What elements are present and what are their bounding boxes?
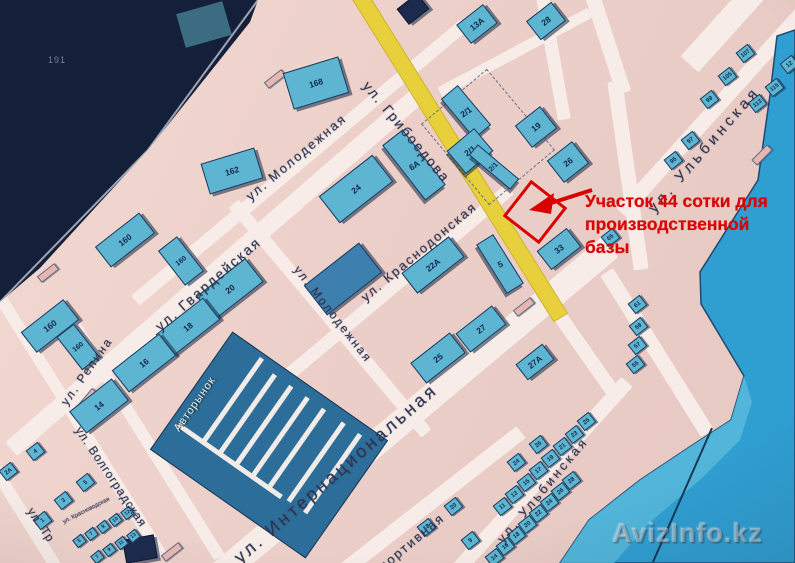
building-number: 61	[633, 300, 642, 309]
building-number: 19	[529, 120, 543, 134]
building-number: 10	[111, 516, 119, 524]
garage	[751, 144, 772, 165]
building-number: 2/1	[488, 161, 500, 173]
building-number: 17	[534, 466, 543, 475]
building-number: 97	[686, 136, 695, 145]
building-number: 28	[567, 476, 576, 485]
building-number: 9	[106, 547, 112, 553]
building-number: 33	[552, 242, 566, 256]
building-number: 160	[41, 318, 58, 335]
building-3: 3	[53, 490, 73, 509]
building-number: 26	[561, 155, 575, 169]
building-number: 160	[174, 255, 188, 268]
building-number: 160	[71, 341, 85, 354]
building-number: 7	[94, 554, 100, 560]
building-number: 19	[546, 454, 555, 463]
building-number: 24	[349, 182, 363, 196]
building-number: 27А	[526, 353, 544, 370]
building-number: 28	[539, 14, 553, 28]
building-number: 95	[669, 156, 678, 165]
building-number: 24	[512, 458, 521, 467]
building-number: 20	[223, 282, 237, 296]
annotation-line: производственной	[585, 213, 768, 236]
building-number: 13	[510, 490, 519, 499]
building-9: 9	[96, 520, 111, 535]
building-number: 26	[556, 487, 565, 496]
annotation-line: Участок 44 сотки для	[585, 190, 768, 213]
annotation-line: базы	[585, 236, 768, 259]
building-number: 99	[705, 95, 714, 104]
street-road	[600, 267, 713, 436]
building-number: 107	[739, 48, 751, 59]
building-number: 3	[60, 497, 66, 504]
building-number: 5	[82, 479, 88, 486]
building-number: 15	[522, 478, 531, 487]
building-number: 14	[490, 553, 499, 562]
building-5: 5	[75, 472, 95, 491]
building-number: 26	[534, 440, 543, 449]
building-number: 168	[308, 76, 324, 90]
building-168: 168	[283, 56, 350, 109]
building-number: 13	[129, 532, 137, 540]
building-number: 7	[88, 531, 94, 537]
building-number: 59	[634, 322, 643, 331]
building-number: 11	[498, 502, 507, 511]
building-26: 26	[528, 434, 548, 453]
district-inner-building	[176, 1, 232, 48]
building-number: 13А	[468, 15, 486, 32]
city-map: 191 Авторынок 168162246А2018161416016016…	[0, 0, 795, 563]
building-number: 4	[32, 448, 38, 455]
building-number: 115	[768, 82, 779, 93]
building-number: 22А	[424, 256, 442, 273]
building-number: 105	[721, 71, 733, 82]
garage	[161, 542, 183, 562]
building-number: 9	[100, 524, 106, 530]
building-number: 5	[76, 538, 82, 544]
building-115: 115	[764, 77, 784, 96]
building-number: 5	[496, 258, 505, 269]
building-number: 27	[474, 322, 488, 336]
building-number: 57	[633, 341, 642, 350]
building-number: 9	[467, 537, 473, 544]
building-12: 12	[779, 54, 795, 73]
building-27А: 27А	[515, 344, 554, 381]
building-number: 18	[181, 320, 195, 334]
building-number: 14	[92, 399, 106, 413]
building-10: 10	[108, 513, 123, 528]
building-9: 9	[102, 543, 117, 558]
building-number: 160	[116, 232, 133, 249]
building-block	[397, 0, 430, 25]
building-number: 24	[545, 498, 554, 507]
building-160: 160	[95, 213, 155, 268]
building-number: 25	[431, 351, 445, 365]
building-number: 162	[224, 164, 240, 178]
building-7: 7	[90, 550, 105, 563]
building-number: 16	[137, 356, 151, 370]
building-block	[122, 534, 158, 563]
building-55: 55	[625, 354, 645, 373]
building-13А: 13А	[456, 4, 498, 44]
building-number: 12	[785, 60, 794, 69]
building-number: 25	[582, 417, 591, 426]
building-5: 5	[72, 534, 87, 549]
annotation-text: Участок 44 сотки для производственной ба…	[585, 190, 768, 259]
building-number: 2А	[3, 466, 13, 475]
watermark: AvizInfo.kz	[612, 518, 763, 549]
building-number: 2/1	[458, 105, 473, 120]
district-number: 191	[48, 55, 66, 65]
building-number: 11	[117, 539, 125, 547]
building-number: 55	[631, 360, 640, 369]
building-24: 24	[506, 452, 526, 471]
building-number: 20	[449, 502, 458, 511]
building-7: 7	[84, 527, 99, 542]
